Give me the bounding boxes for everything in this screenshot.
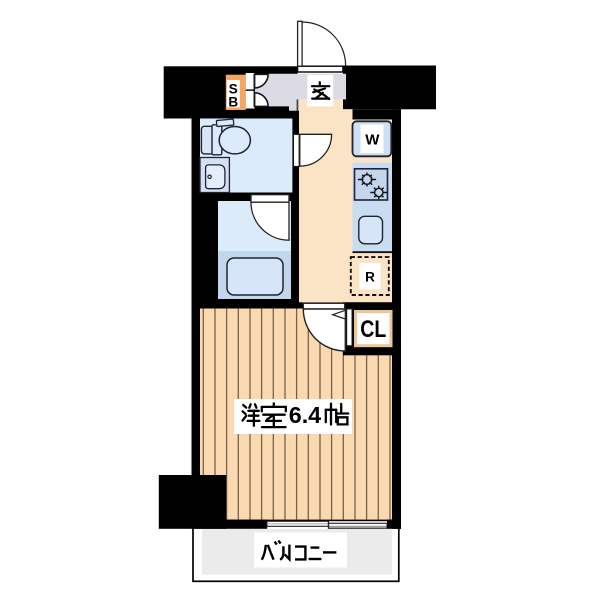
svg-text:CL: CL <box>360 316 386 343</box>
svg-text:6.4: 6.4 <box>289 402 322 428</box>
svg-text:R: R <box>365 270 375 285</box>
svg-text:W: W <box>365 132 380 149</box>
svg-text:B: B <box>228 95 238 110</box>
